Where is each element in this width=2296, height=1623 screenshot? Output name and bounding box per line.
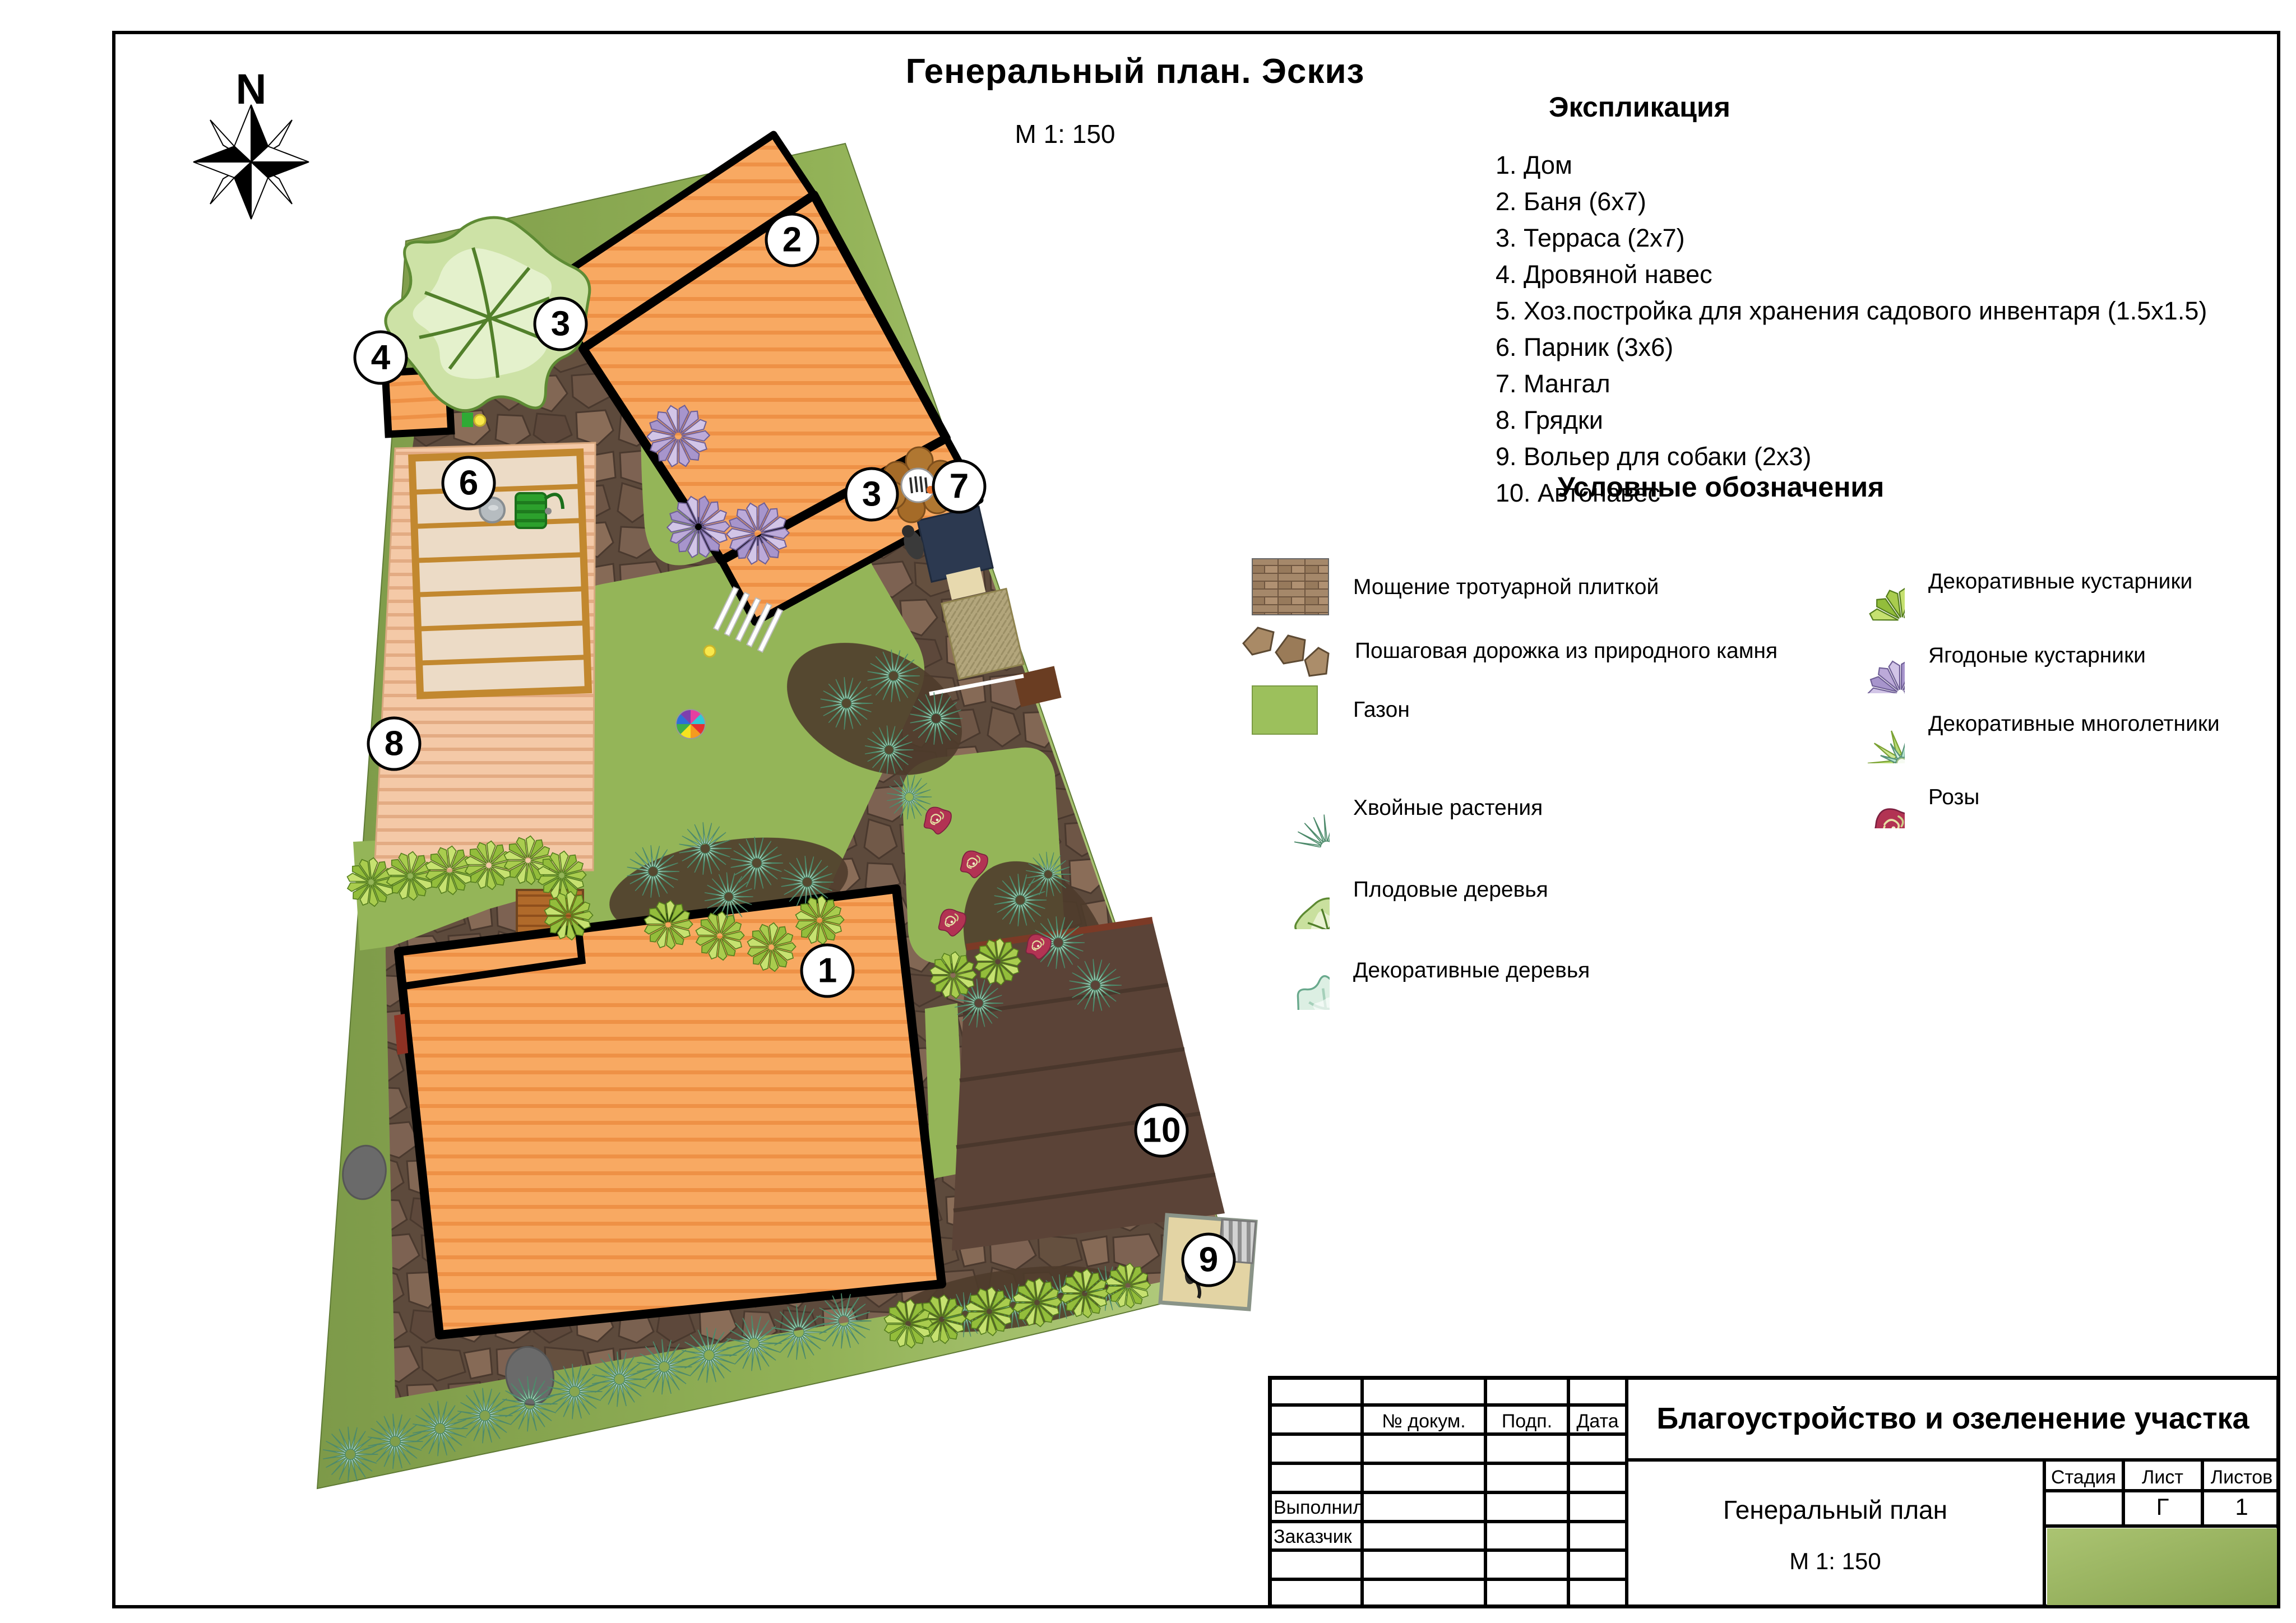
- explication-item: 2. Баня (6х7): [1496, 183, 2207, 220]
- legend-item: Декоративные кустарники: [1821, 542, 2192, 621]
- legend-label: Ягодоные кустарники: [1928, 643, 2146, 668]
- title-block-accent: [2047, 1528, 2277, 1605]
- legend-label: Пошаговая дорожка из природного камня: [1355, 639, 1777, 664]
- svg-text:2: 2: [783, 221, 802, 259]
- rose-icon: [1821, 767, 1905, 828]
- berry-shrub-icon: [1821, 618, 1905, 693]
- legend-item: Плодовые деревья: [1246, 851, 1548, 929]
- legend-label: Розы: [1928, 785, 1979, 810]
- explication-item: 3. Терраса (2х7): [1496, 220, 2207, 256]
- explication-item: 4. Дровяной навес: [1496, 256, 2207, 293]
- sheets-header: Листов: [2211, 1467, 2272, 1488]
- legend-item: Мощение тротуарной плиткой: [1251, 558, 1659, 616]
- explication-item: 7. Мангал: [1496, 365, 2207, 402]
- page-title: Генеральный план. Эскиз: [785, 52, 1485, 91]
- legend-label: Мощение тротуарной плиткой: [1353, 575, 1659, 600]
- legend-label: Плодовые деревья: [1353, 878, 1548, 902]
- legend-label: Декоративные кустарники: [1928, 569, 2192, 594]
- explication-item: 6. Парник (3х6): [1496, 329, 2207, 365]
- drawing-sheet: 1 2 3 3 4 6 7 8 9 10 N: [0, 0, 2296, 1623]
- legend-label: Хвойные растения: [1353, 796, 1543, 820]
- legend-label: Газон: [1353, 698, 1410, 722]
- customer-label: Заказчик: [1274, 1526, 1353, 1547]
- plan-label-dogpen: 9: [1183, 1234, 1234, 1286]
- stage-header: Стадия: [2051, 1467, 2116, 1488]
- plan-label-terrace-upper: 3: [535, 298, 586, 350]
- sheets-value: 1: [2235, 1494, 2248, 1520]
- svg-text:6: 6: [459, 464, 478, 503]
- beach-ball: [676, 710, 705, 739]
- svg-text:4: 4: [371, 338, 391, 377]
- plan-label-terrace-lower: 3: [846, 469, 897, 520]
- explication-heading: Экспликация: [1508, 91, 1771, 123]
- title-block: № докум. Подп. Дата Выполнил Заказчик Бл…: [1268, 1376, 2280, 1608]
- legend-item: Ягодоные кустарники: [1821, 618, 2146, 693]
- explication-item: 9. Вольер для собаки (2х3): [1496, 438, 2207, 475]
- legend-item: Декоративные деревья: [1246, 931, 1590, 1010]
- sheet-header: Лист: [2142, 1467, 2183, 1488]
- legend-item: Розы: [1821, 767, 1979, 828]
- conifer-icon: [1246, 769, 1330, 847]
- paving-swatch-icon: [1251, 558, 1330, 616]
- bbq-rug: [918, 507, 993, 582]
- decorative-shrub-icon: [1821, 542, 1905, 621]
- performed-label: Выполнил: [1274, 1497, 1364, 1518]
- explication-item: 1. Дом: [1496, 147, 2207, 183]
- plan-label-woodshed: 4: [355, 332, 406, 383]
- svg-text:9: 9: [1199, 1241, 1218, 1279]
- svg-text:3: 3: [862, 475, 881, 514]
- date-column-header: Дата: [1576, 1411, 1618, 1432]
- plan-label-beds: 8: [368, 718, 420, 769]
- drawing-title: Генеральный план: [1723, 1495, 1947, 1524]
- drawing-scale: М 1: 150: [1789, 1548, 1881, 1574]
- plan-label-carport: 10: [1136, 1105, 1187, 1156]
- greenhouse: [412, 452, 589, 695]
- tap-icon: [462, 412, 473, 427]
- svg-text:1: 1: [818, 952, 837, 990]
- explication-item: 8. Грядки: [1496, 402, 2207, 438]
- doc-column-header: № докум.: [1382, 1411, 1465, 1432]
- plan-label-greenhouse: 6: [443, 457, 494, 509]
- compass-rose: N: [151, 42, 353, 266]
- page-scale: М 1: 150: [869, 119, 1261, 149]
- explication-item: 5. Хоз.постройка для хранения садового и…: [1496, 293, 2207, 329]
- plate: [901, 469, 935, 502]
- explication-list: 1. Дом 2. Баня (6х7) 3. Терраса (2х7) 4.…: [1496, 147, 2207, 511]
- legend-item: Газон: [1251, 685, 1410, 735]
- perennial-icon: [1821, 685, 1905, 763]
- project-title: Благоустройство и озеленение участка: [1656, 1402, 2249, 1435]
- svg-text:7: 7: [950, 467, 969, 506]
- svg-text:3: 3: [551, 305, 570, 344]
- legend-item: Хвойные растения: [1246, 769, 1543, 847]
- stepping-stones-icon: [1239, 623, 1331, 679]
- plan-label-bathhouse: 2: [766, 214, 818, 266]
- plan-label-bbq: 7: [933, 461, 985, 512]
- sign-column-header: Подп.: [1502, 1411, 1552, 1432]
- sheet-value: Г: [2156, 1494, 2169, 1520]
- fruit-tree-icon: [1246, 851, 1330, 929]
- legend-label: Декоративные многолетники: [1928, 712, 2220, 736]
- legend-item: Пошаговая дорожка из природного камня: [1239, 623, 1777, 679]
- house: [394, 889, 942, 1335]
- plan-label-house: 1: [802, 945, 853, 996]
- legend-item: Декоративные многолетники: [1821, 685, 2220, 763]
- legend-label: Декоративные деревья: [1353, 958, 1590, 983]
- lawn-swatch-icon: [1251, 685, 1330, 735]
- legend-heading: Условные обозначения: [1536, 471, 1906, 503]
- svg-text:8: 8: [385, 725, 404, 763]
- svg-text:10: 10: [1142, 1111, 1181, 1150]
- decorative-tree-icon: [1246, 931, 1330, 1010]
